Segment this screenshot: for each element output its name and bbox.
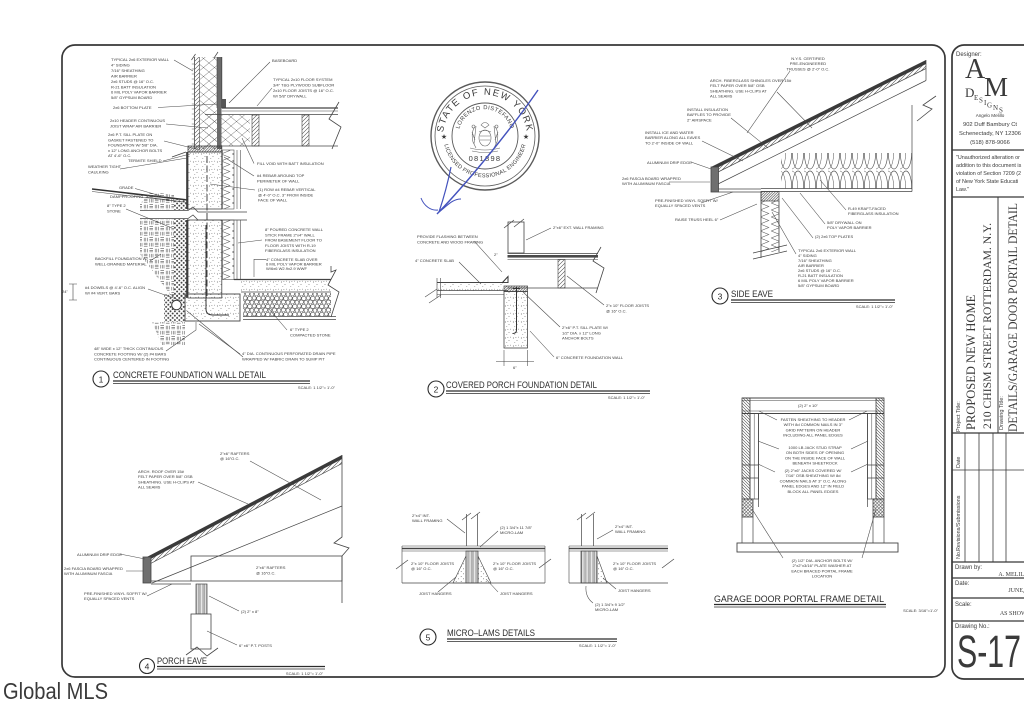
svg-text:AS SHOWN: AS SHOWN [1000, 611, 1024, 617]
svg-text:G: G [987, 102, 992, 110]
svg-text:BASEBOARD: BASEBOARD [272, 58, 297, 63]
svg-text:GRADE: GRADE [119, 185, 134, 190]
svg-text:902 Duff Bambury Ct: 902 Duff Bambury Ct [963, 122, 1017, 128]
svg-text:CONCRETE FOUNDATION WALL DETAI: CONCRETE FOUNDATION WALL DETAIL [113, 370, 266, 380]
svg-text:S-17: S-17 [957, 626, 1021, 677]
svg-text:SCALE: 3/16"=1'-0": SCALE: 3/16"=1'-0" [903, 608, 938, 613]
svg-text:5: 5 [426, 633, 431, 643]
svg-text:(2) 2" x 8": (2) 2" x 8" [241, 609, 259, 614]
svg-text:Date: Date [956, 457, 962, 468]
svg-text:★: ★ [523, 133, 529, 141]
svg-text:GARAGE DOOR PORTAL FRAME DETAI: GARAGE DOOR PORTAL FRAME DETAIL [714, 594, 884, 604]
svg-text:ALUMINUM DRIP EDGE: ALUMINUM DRIP EDGE [647, 160, 692, 165]
svg-text:DETAILS/GARAGE DOOR PORTAIL DE: DETAILS/GARAGE DOOR PORTAIL DETAIL [1006, 203, 1020, 432]
svg-text:COVERED PORCH FOUNDATION DETAI: COVERED PORCH FOUNDATION DETAIL [446, 380, 597, 390]
svg-text:SCALE: 1 1/2"= 1'-0": SCALE: 1 1/2"= 1'-0" [298, 385, 336, 390]
svg-text:6": 6" [513, 365, 517, 370]
svg-text:N: N [993, 104, 998, 112]
svg-text:3: 3 [718, 292, 723, 302]
svg-text:4: 4 [145, 662, 150, 672]
svg-text:PROVIDE FLASHING BETWEENCONCRE: PROVIDE FLASHING BETWEENCONCRETE AND WOO… [417, 234, 483, 244]
svg-text:JOIST HANGERS: JOIST HANGERS [419, 591, 452, 596]
svg-text:SCALE: 1 1/2"= 1'-0": SCALE: 1 1/2"= 1'-0" [856, 304, 894, 309]
svg-text:Schenectady, NY 12306: Schenectady, NY 12306 [959, 131, 1021, 137]
svg-text:D: D [965, 85, 974, 100]
svg-text:M: M [984, 72, 1008, 102]
svg-text:A: A [965, 54, 986, 85]
svg-text:1000 LB JACK STUD STRAPON BOTH: 1000 LB JACK STUD STRAPON BOTH SIDES OF … [785, 445, 846, 466]
svg-text:DAMPPROOFING: DAMPPROOFING [110, 194, 143, 199]
svg-text:SCALE: 1 1/2"= 1'-0": SCALE: 1 1/2"= 1'-0" [286, 671, 324, 676]
svg-text:Drawing Title:: Drawing Title: [999, 396, 1005, 430]
svg-text:TERMITE SHIELD: TERMITE SHIELD [128, 158, 162, 163]
svg-text:Global MLS: Global MLS [3, 678, 108, 704]
svg-text:(2) 2"x6" JACKS COVERED W/7/16: (2) 2"x6" JACKS COVERED W/7/16" OSB SHEA… [780, 468, 847, 494]
svg-text:6" x6" P.T. POSTS: 6" x6" P.T. POSTS [239, 643, 272, 648]
svg-text:1: 1 [99, 375, 104, 385]
svg-text:(2) 2x6 TOP PLATES: (2) 2x6 TOP PLATES [815, 234, 853, 239]
svg-text:SIDE EAVE: SIDE EAVE [731, 289, 773, 299]
svg-text:210 CHISM STREET ROTTERDAM. N.: 210 CHISM STREET ROTTERDAM. N.Y. [980, 223, 994, 429]
svg-text:Drawn by:: Drawn by: [955, 565, 982, 571]
svg-text:Project Title:: Project Title: [956, 401, 962, 432]
svg-text:2x10 HEADER CONTINUOUSJOIST WR: 2x10 HEADER CONTINUOUSJOIST WRAP AIR BAR… [110, 118, 165, 128]
svg-text:4" DIA. CONTINUOUS PERFORATED: 4" DIA. CONTINUOUS PERFORATED DRAIN PIPE… [242, 351, 336, 361]
svg-text:E: E [974, 94, 978, 102]
svg-text:8" POURED CONCRETE WALLSTICK F: 8" POURED CONCRETE WALLSTICK FRAME 2"x4"… [265, 227, 324, 253]
svg-text:S: S [979, 97, 983, 105]
svg-text:A. MELILLO: A. MELILLO [998, 572, 1024, 578]
svg-text:★: ★ [441, 133, 447, 141]
svg-text:#4 REBAR AROUND TOPPERIMETER O: #4 REBAR AROUND TOPPERIMETER OF WALL [257, 173, 305, 183]
svg-text:SCALE: 1 1/2"= 1'-0": SCALE: 1 1/2"= 1'-0" [608, 395, 646, 400]
svg-text:2x6 BOTTOM PLATE: 2x6 BOTTOM PLATE [113, 105, 152, 110]
svg-text:N.Y.S. CERTIFIEDPRE-ENGINEERED: N.Y.S. CERTIFIEDPRE-ENGINEEREDTRUSSES @ … [787, 56, 830, 71]
svg-text:RAISE TRUSS HEEL 6": RAISE TRUSS HEEL 6" [675, 217, 719, 222]
svg-text:4" CONCRETE SLAB: 4" CONCRETE SLAB [415, 258, 454, 263]
svg-text:JOIST HANGERS: JOIST HANGERS [500, 591, 533, 596]
svg-text:INSTALL ICE AND WATERBARRIER A: INSTALL ICE AND WATERBARRIER ALONG ALL E… [645, 130, 701, 145]
svg-text:48" WIDE x 12" THICK CONTINUOU: 48" WIDE x 12" THICK CONTINUOUSCONCRETE … [94, 346, 169, 362]
svg-text:ALUMINUM DRIP EDGE: ALUMINUM DRIP EDGE [77, 552, 122, 557]
svg-text:FILL VOID WITH BATT INSULATION: FILL VOID WITH BATT INSULATION [257, 161, 324, 166]
svg-text:24": 24" [62, 289, 69, 294]
svg-text:FASTEN SHEATHING TO HEADERWITH: FASTEN SHEATHING TO HEADERWITH 8d COMMON… [781, 417, 846, 438]
svg-text:Revisions/Submissions: Revisions/Submissions [956, 495, 962, 551]
svg-text:JUNE, 20: JUNE, 20 [1008, 588, 1024, 594]
svg-text:2"x6" EXT. WALL FRAMING: 2"x6" EXT. WALL FRAMING [553, 225, 604, 230]
svg-text:PROPOSED NEW HOME: PROPOSED NEW HOME [964, 294, 978, 430]
svg-text:SCALE: 1 1/2"= 1'-0": SCALE: 1 1/2"= 1'-0" [579, 643, 617, 648]
svg-text:PORCH EAVE: PORCH EAVE [157, 656, 207, 666]
svg-text:2: 2 [434, 385, 439, 395]
svg-text:(518) 878-9066: (518) 878-9066 [970, 140, 1010, 146]
svg-text:6" CONCRETE FOUNDATION WALL: 6" CONCRETE FOUNDATION WALL [556, 355, 624, 360]
svg-text:BACKFILL FOUNDATION W/WELL-DRA: BACKFILL FOUNDATION W/WELL-DRAINED MATER… [95, 256, 148, 266]
svg-text:(2) 2" x 10": (2) 2" x 10" [798, 403, 819, 408]
svg-text:Angelo Melillo: Angelo Melillo [976, 113, 1005, 118]
svg-text:2": 2" [494, 252, 498, 257]
svg-text:Scale:: Scale: [955, 602, 972, 608]
svg-text:Date:: Date: [955, 581, 970, 587]
svg-text:No.:: No.: [956, 549, 962, 559]
svg-text:MICRO–LAMS DETAILS: MICRO–LAMS DETAILS [447, 628, 535, 638]
svg-text:JOIST HANGERS: JOIST HANGERS [618, 588, 651, 593]
